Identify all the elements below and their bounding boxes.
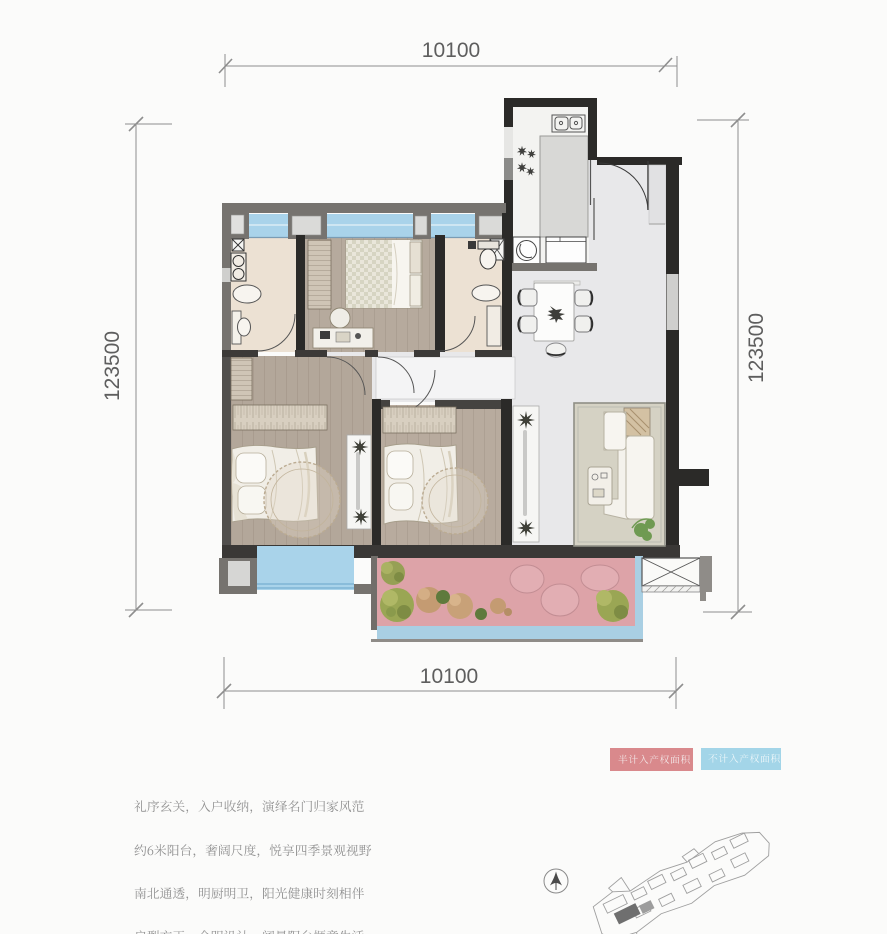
svg-text:10100: 10100 [420, 665, 478, 688]
svg-text:123500: 123500 [745, 313, 768, 383]
svg-text:123500: 123500 [101, 331, 124, 401]
svg-text:10100: 10100 [422, 39, 480, 62]
